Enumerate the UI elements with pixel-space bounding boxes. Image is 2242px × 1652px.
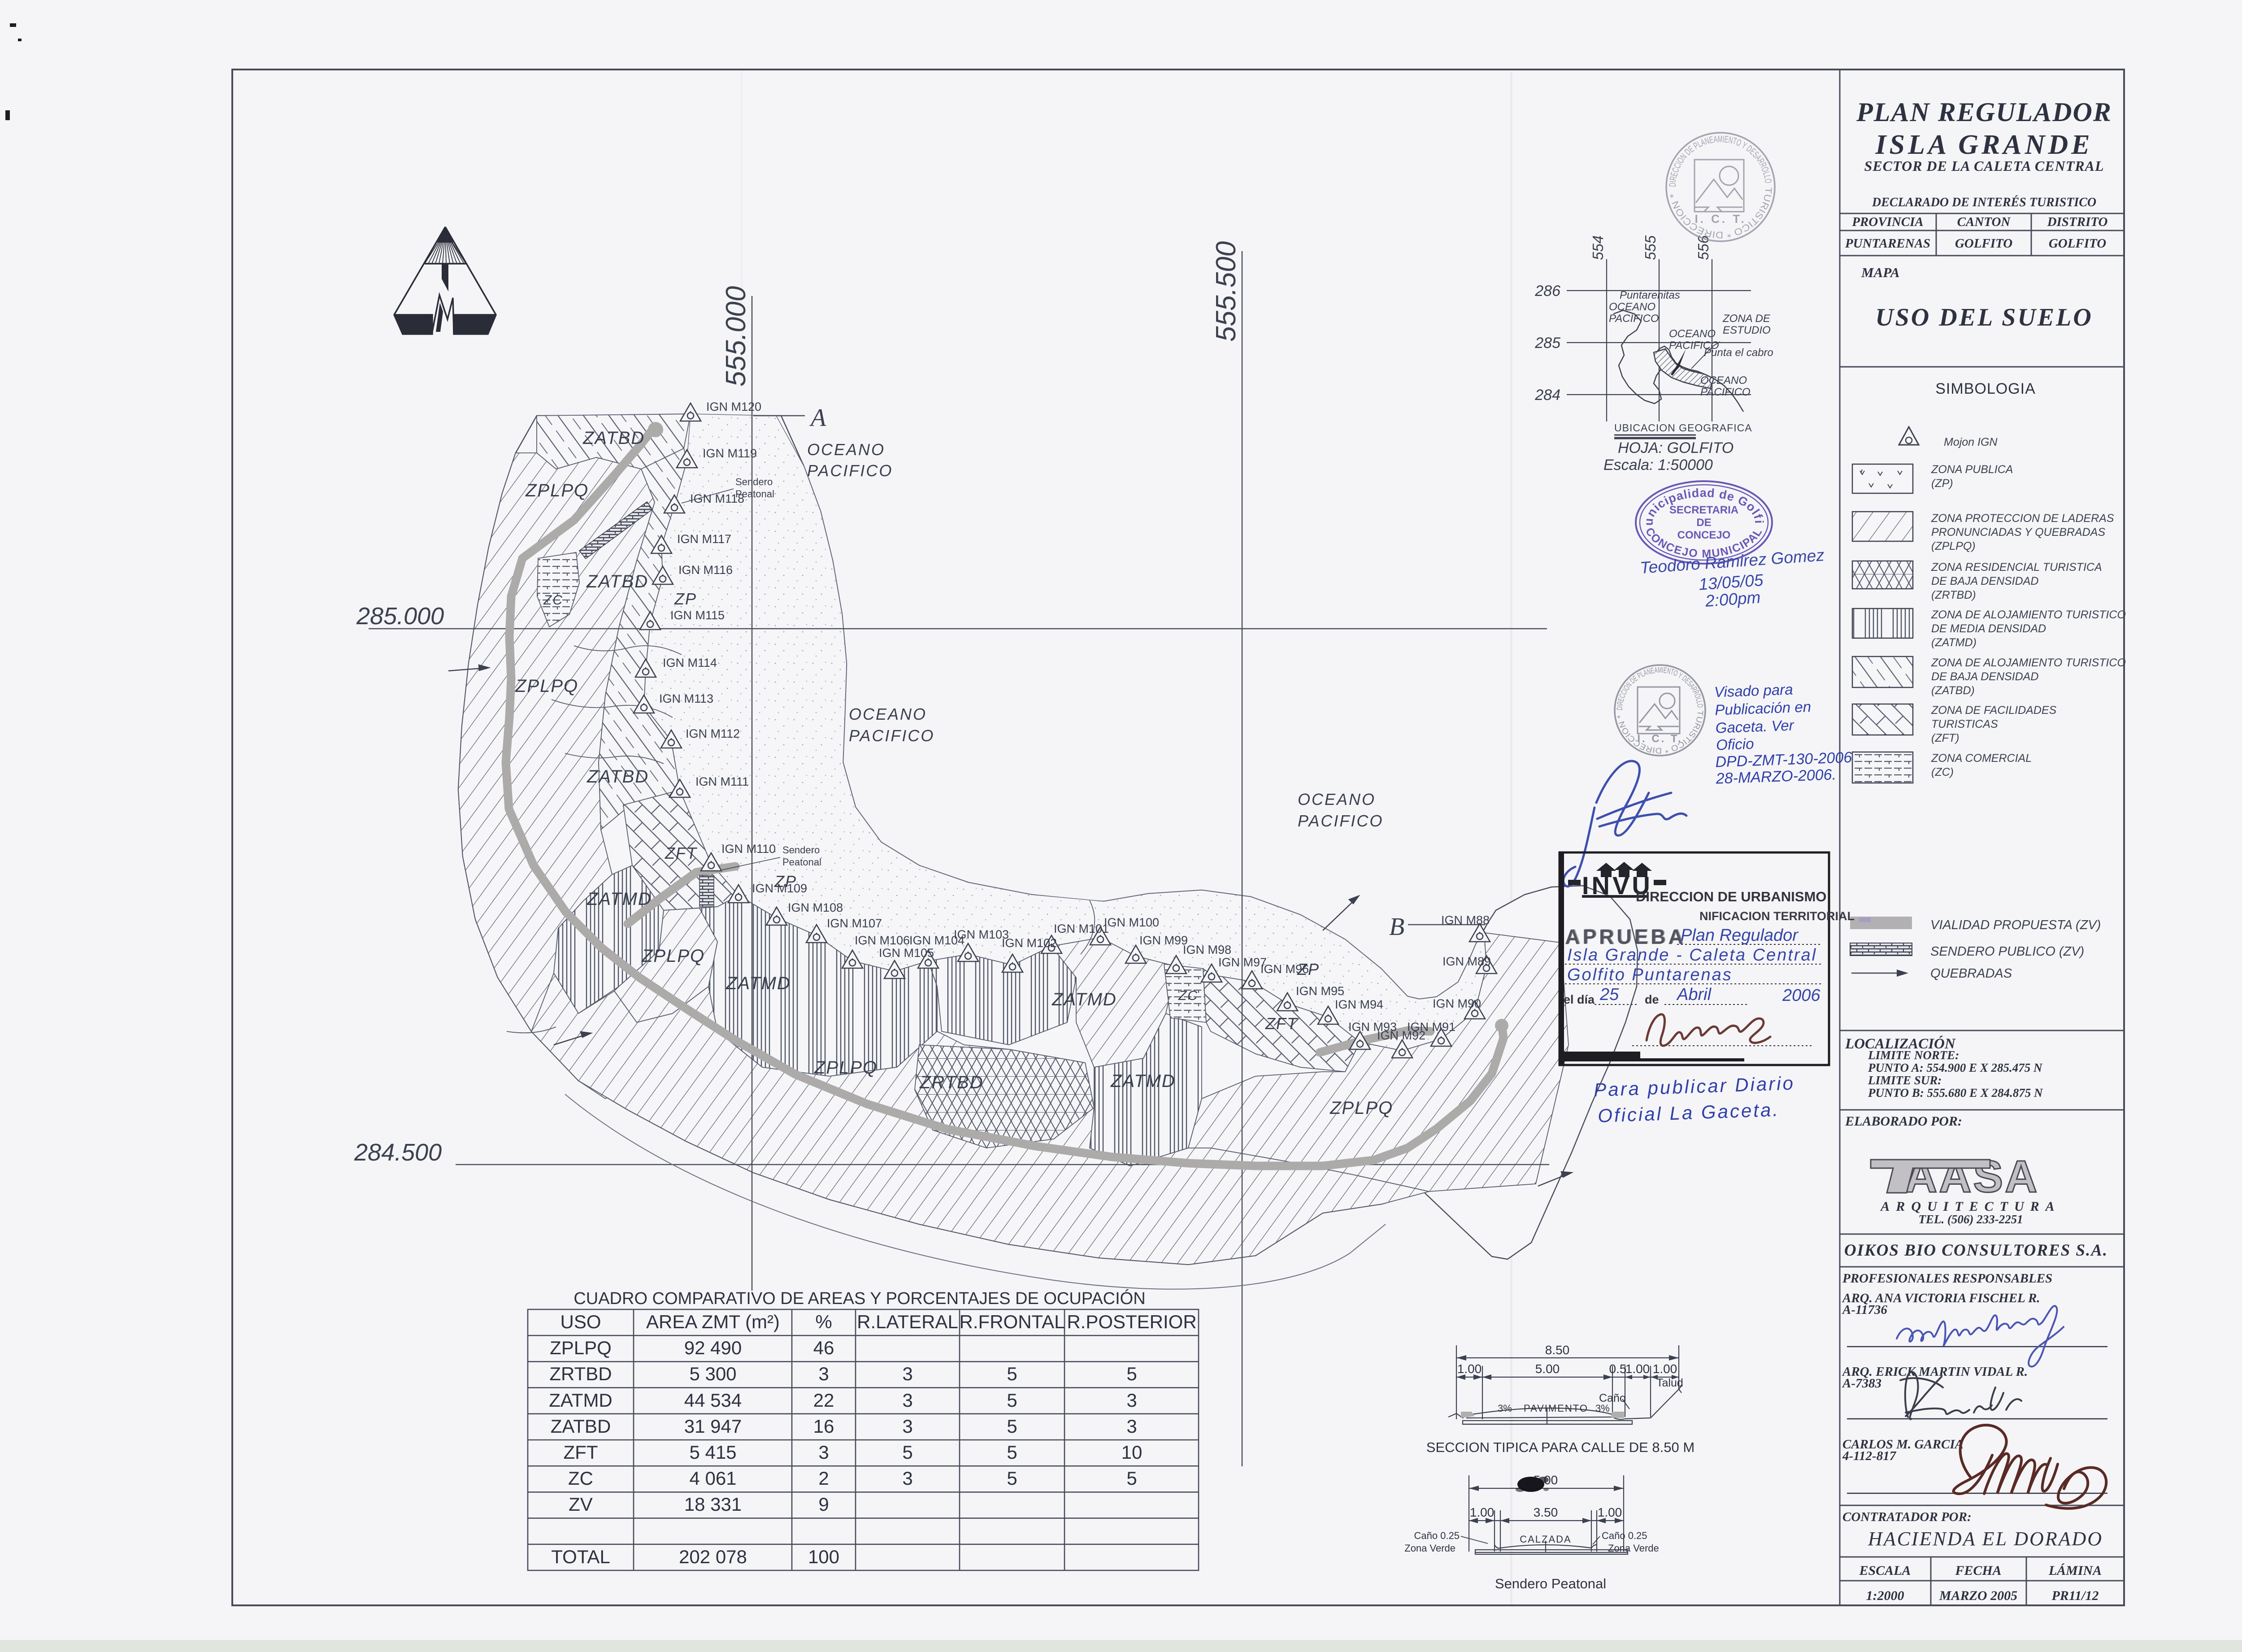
svg-text:ZPLPQ: ZPLPQ: [550, 1337, 612, 1358]
svg-text:PROVINCIA: PROVINCIA: [1851, 215, 1924, 229]
svg-text:Zona Verde: Zona Verde: [1404, 1543, 1456, 1554]
svg-text:UBICACION GEOGRAFICA: UBICACION GEOGRAFICA: [1614, 422, 1752, 434]
svg-text:555: 555: [1642, 235, 1659, 260]
svg-text:ZPLPQ: ZPLPQ: [525, 481, 589, 500]
svg-text:ZV: ZV: [569, 1494, 593, 1515]
svg-text:ZPLPQ: ZPLPQ: [515, 676, 578, 696]
svg-text:1.00: 1.00: [1625, 1362, 1650, 1376]
svg-text:SECTOR DE LA CALETA CENTRAL: SECTOR DE LA CALETA CENTRAL: [1864, 158, 2104, 174]
svg-text:Oficio: Oficio: [1716, 735, 1754, 753]
svg-text:Publicación en: Publicación en: [1715, 698, 1812, 718]
svg-text:%: %: [815, 1311, 832, 1332]
svg-text:OCEANO: OCEANO: [1298, 790, 1376, 809]
svg-text:ARQUITECTURA: ARQUITECTURA: [1880, 1199, 2060, 1214]
svg-text:22: 22: [813, 1390, 834, 1411]
svg-text:8.50: 8.50: [1545, 1343, 1570, 1357]
svg-text:25: 25: [1599, 985, 1619, 1004]
svg-text:Talud: Talud: [1656, 1377, 1683, 1389]
svg-text:ZATMD: ZATMD: [549, 1390, 613, 1411]
svg-text:Sendero Peatonal: Sendero Peatonal: [1495, 1576, 1606, 1591]
svg-text:IGN M89: IGN M89: [1443, 955, 1491, 968]
svg-text:SENDERO PUBLICO (ZV): SENDERO PUBLICO (ZV): [1930, 944, 2084, 959]
svg-text:TOTAL: TOTAL: [551, 1546, 610, 1567]
svg-text:3: 3: [1126, 1416, 1137, 1437]
svg-text:OCEANO: OCEANO: [849, 705, 927, 723]
svg-text:SECCION TIPICA PARA CALLE DE 8: SECCION TIPICA PARA CALLE DE 8.50 M: [1426, 1439, 1695, 1455]
svg-text:de: de: [1645, 993, 1659, 1006]
svg-text:16: 16: [813, 1416, 834, 1437]
svg-text:18 331: 18 331: [684, 1494, 742, 1515]
svg-text:I. C. T.: I. C. T.: [1695, 212, 1746, 226]
svg-text:Mojon IGN: Mojon IGN: [1944, 436, 1998, 448]
svg-text:IGN M111: IGN M111: [695, 775, 749, 788]
svg-text:(ZATBD): (ZATBD): [1931, 684, 1975, 697]
svg-text:PACIFICO: PACIFICO: [1609, 313, 1659, 325]
svg-text:Sendero: Sendero: [735, 476, 773, 487]
svg-text:IGN M98: IGN M98: [1183, 943, 1231, 956]
svg-text:DE BAJA DENSIDAD: DE BAJA DENSIDAD: [1931, 670, 2038, 683]
svg-text:ZONA DE: ZONA DE: [1722, 313, 1771, 325]
svg-text:4 061: 4 061: [689, 1468, 736, 1489]
svg-text:APRUEBA: APRUEBA: [1566, 925, 1686, 948]
svg-text:202 078: 202 078: [679, 1546, 747, 1567]
svg-text:ZONA COMERCIAL: ZONA COMERCIAL: [1931, 752, 2032, 765]
svg-text:DE BAJA DENSIDAD: DE BAJA DENSIDAD: [1931, 575, 2038, 587]
svg-text:ZATBD: ZATBD: [582, 428, 645, 448]
svg-text:IGN M101: IGN M101: [1054, 922, 1109, 935]
svg-text:100: 100: [808, 1546, 839, 1567]
svg-text:1.00: 1.00: [1653, 1362, 1677, 1376]
svg-text:IGN M106: IGN M106: [855, 934, 910, 947]
svg-text:GOLFITO: GOLFITO: [2049, 236, 2106, 251]
svg-text:PLAN REGULADOR: PLAN REGULADOR: [1856, 97, 2112, 127]
svg-text:554: 554: [1590, 235, 1606, 260]
svg-text:ZATBD: ZATBD: [586, 572, 648, 591]
svg-text:2:00pm: 2:00pm: [1704, 588, 1761, 610]
svg-text:ZC: ZC: [568, 1468, 593, 1489]
svg-text:31 947: 31 947: [684, 1416, 742, 1437]
svg-text:44 534: 44 534: [684, 1390, 742, 1411]
svg-text:DE MEDIA DENSIDAD: DE MEDIA DENSIDAD: [1931, 622, 2046, 635]
svg-text:A-7383: A-7383: [1842, 1376, 1881, 1391]
svg-text:VIALIDAD PROPUESTA (ZV): VIALIDAD PROPUESTA (ZV): [1930, 918, 2101, 932]
svg-text:IGN M95: IGN M95: [1296, 984, 1344, 998]
svg-text:IGN M88: IGN M88: [1441, 913, 1490, 927]
svg-text:Caño 0.25: Caño 0.25: [1602, 1530, 1647, 1541]
svg-text:ZP: ZP: [674, 590, 697, 608]
svg-text:Puntarenitas: Puntarenitas: [1620, 289, 1680, 301]
svg-text:CALZADA: CALZADA: [1520, 1534, 1571, 1545]
svg-text:46: 46: [813, 1337, 834, 1358]
svg-text:ZATBD: ZATBD: [551, 1416, 611, 1437]
svg-text:ZPLPQ: ZPLPQ: [1330, 1098, 1393, 1118]
svg-text:286: 286: [1534, 283, 1560, 300]
svg-text:5: 5: [1007, 1363, 1017, 1384]
svg-text:5 300: 5 300: [689, 1363, 736, 1384]
svg-text:555.000: 555.000: [721, 286, 752, 387]
svg-text:ZC: ZC: [1178, 988, 1198, 1003]
svg-text:ZONA DE ALOJAMIENTO TURISTICO: ZONA DE ALOJAMIENTO TURISTICO: [1931, 609, 2126, 621]
svg-text:IGN M119: IGN M119: [703, 447, 757, 460]
svg-text:IGN M109: IGN M109: [752, 882, 807, 895]
svg-text:Gaceta. Ver: Gaceta. Ver: [1715, 717, 1795, 736]
svg-text:1:2000: 1:2000: [1866, 1588, 1904, 1603]
svg-text:3.50: 3.50: [1534, 1505, 1558, 1519]
svg-text:IGN M118: IGN M118: [690, 492, 744, 505]
svg-text:OCEANO: OCEANO: [1700, 374, 1747, 387]
svg-text:IGN M100: IGN M100: [1104, 916, 1159, 929]
svg-text:PACIFICO: PACIFICO: [1700, 386, 1751, 398]
svg-text:5: 5: [1007, 1416, 1017, 1437]
svg-text:5 415: 5 415: [689, 1442, 736, 1463]
svg-text:IGN M115: IGN M115: [670, 609, 725, 622]
svg-text:9: 9: [818, 1494, 829, 1515]
svg-text:Escala: 1:50000: Escala: 1:50000: [1603, 456, 1713, 474]
svg-text:3: 3: [902, 1468, 912, 1489]
svg-text:NIFICACION TERRITORIAL: NIFICACION TERRITORIAL: [1699, 909, 1855, 923]
svg-text:IGN M107: IGN M107: [827, 917, 882, 930]
svg-text:ZONA RESIDENCIAL TURISTICA: ZONA RESIDENCIAL TURISTICA: [1931, 561, 2102, 574]
svg-text:5: 5: [1126, 1363, 1137, 1384]
svg-text:GOLFITO: GOLFITO: [1955, 236, 2012, 251]
svg-text:284.500: 284.500: [354, 1139, 442, 1166]
svg-text:IGN M96: IGN M96: [1260, 962, 1309, 976]
svg-text:PACIFICO: PACIFICO: [807, 461, 893, 480]
svg-text:DISTRITO: DISTRITO: [2047, 215, 2108, 229]
svg-text:PAVIMENTO: PAVIMENTO: [1524, 1403, 1588, 1414]
svg-text:CONTRATADOR POR:: CONTRATADOR POR:: [1842, 1510, 1972, 1524]
svg-text:IGN M99: IGN M99: [1139, 934, 1188, 947]
svg-text:(ZP): (ZP): [1931, 477, 1953, 490]
svg-text:MARZO 2005: MARZO 2005: [1939, 1588, 2017, 1603]
svg-text:USO: USO: [560, 1311, 601, 1332]
svg-text:SECRETARIA: SECRETARIA: [1669, 504, 1738, 516]
svg-text:TEL. (506) 233-2251: TEL. (506) 233-2251: [1918, 1213, 2023, 1226]
svg-text:LIMITE NORTE:: LIMITE NORTE:: [1868, 1048, 1959, 1062]
svg-text:Plan Regulador: Plan Regulador: [1681, 926, 1799, 945]
svg-text:el día: el día: [1564, 993, 1595, 1006]
svg-text:ESCALA: ESCALA: [1859, 1563, 1911, 1578]
svg-text:5.00: 5.00: [1535, 1362, 1560, 1376]
svg-text:A-11736: A-11736: [1842, 1303, 1887, 1317]
svg-text:1.00: 1.00: [1470, 1505, 1495, 1519]
svg-text:IGN M116: IGN M116: [678, 563, 733, 577]
svg-text:PROFESIONALES RESPONSABLES: PROFESIONALES RESPONSABLES: [1842, 1271, 2052, 1286]
svg-text:10: 10: [1121, 1442, 1143, 1463]
svg-text:(ZC): (ZC): [1931, 766, 1954, 778]
svg-text:ZPLPQ: ZPLPQ: [641, 946, 705, 966]
svg-text:IGN M110: IGN M110: [721, 842, 776, 856]
svg-text:PRONUNCIADAS Y QUEBRADAS: PRONUNCIADAS Y QUEBRADAS: [1931, 526, 2105, 539]
svg-text:IGN M114: IGN M114: [663, 656, 717, 669]
svg-text:Zona Verde: Zona Verde: [1608, 1543, 1659, 1554]
svg-text:3: 3: [902, 1363, 912, 1384]
svg-text:IGN M112: IGN M112: [686, 727, 740, 740]
svg-text:DE: DE: [1696, 517, 1711, 529]
svg-text:ZONA DE FACILIDADES: ZONA DE FACILIDADES: [1931, 704, 2057, 717]
svg-text:4-112-817: 4-112-817: [1842, 1449, 1897, 1463]
svg-text:USO DEL SUELO: USO DEL SUELO: [1875, 304, 2093, 331]
svg-text:2: 2: [818, 1468, 829, 1489]
svg-text:ZPLPQ: ZPLPQ: [814, 1058, 878, 1078]
svg-text:QUEBRADAS: QUEBRADAS: [1930, 966, 2012, 981]
svg-text:CUADRO COMPARATIVO DE AREAS Y: CUADRO COMPARATIVO DE AREAS Y PORCENTAJE…: [574, 1289, 1145, 1308]
svg-text:(ZATMD): (ZATMD): [1931, 636, 1977, 649]
svg-text:ZONA PROTECCION DE LADERAS: ZONA PROTECCION DE LADERAS: [1931, 512, 2114, 525]
svg-text:IGN M113: IGN M113: [659, 692, 713, 705]
svg-text:(ZRTBD): (ZRTBD): [1931, 589, 1976, 601]
svg-text:PUNTO A: 554.900 E X 285.475 N: PUNTO A: 554.900 E X 285.475 N: [1868, 1061, 2043, 1074]
svg-text:LÁMINA: LÁMINA: [2048, 1563, 2102, 1578]
svg-text:2006: 2006: [1782, 986, 1821, 1005]
svg-text:Peatonal: Peatonal: [782, 856, 821, 868]
svg-text:DECLARADO DE INTERÉS TURISTICO: DECLARADO DE INTERÉS TURISTICO: [1872, 196, 2096, 209]
svg-text:IGN M103: IGN M103: [954, 928, 1009, 941]
svg-text:3: 3: [902, 1390, 912, 1411]
svg-text:FECHA: FECHA: [1955, 1563, 2001, 1578]
svg-text:R.FRONTAL: R.FRONTAL: [960, 1311, 1065, 1332]
svg-text:3: 3: [818, 1363, 829, 1384]
svg-text:3%: 3%: [1498, 1403, 1512, 1414]
svg-text:PUNTO B: 555.680 E X 284.875 N: PUNTO B: 555.680 E X 284.875 N: [1868, 1086, 2043, 1100]
svg-text:SIMBOLOGIA: SIMBOLOGIA: [1935, 380, 2036, 397]
svg-text:ZONA DE ALOJAMIENTO TURISTICO: ZONA DE ALOJAMIENTO TURISTICO: [1931, 656, 2126, 669]
svg-text:OIKOS BIO CONSULTORES S.A.: OIKOS BIO CONSULTORES S.A.: [1844, 1241, 2108, 1260]
svg-text:ZONA PUBLICA: ZONA PUBLICA: [1931, 463, 2013, 476]
svg-text:LIMITE SUR:: LIMITE SUR:: [1868, 1074, 1942, 1087]
svg-text:ZFT: ZFT: [1265, 1014, 1298, 1033]
svg-text:OCEANO: OCEANO: [1669, 328, 1716, 340]
svg-text:PACIFICO: PACIFICO: [1298, 812, 1383, 830]
svg-text:285: 285: [1534, 335, 1560, 352]
svg-text:PACIFICO: PACIFICO: [849, 726, 934, 745]
svg-text:AREA ZMT (m²): AREA ZMT (m²): [646, 1311, 780, 1332]
svg-text:ZFT: ZFT: [665, 844, 698, 862]
svg-text:3: 3: [1126, 1390, 1137, 1411]
svg-text:ZC: ZC: [543, 593, 563, 608]
svg-text:IGN M91: IGN M91: [1407, 1020, 1456, 1034]
svg-text:ISLA GRANDE: ISLA GRANDE: [1875, 130, 2093, 160]
svg-text:ZATMD: ZATMD: [1051, 990, 1117, 1009]
svg-text:Punta el cabro: Punta el cabro: [1704, 347, 1773, 359]
svg-text:5: 5: [1007, 1442, 1017, 1463]
svg-text:OCEANO: OCEANO: [807, 440, 885, 459]
svg-text:ZRTBD: ZRTBD: [919, 1073, 984, 1092]
svg-text:5: 5: [1007, 1468, 1017, 1489]
svg-text:OCEANO: OCEANO: [1609, 301, 1655, 313]
svg-text:HACIENDA EL DORADO: HACIENDA EL DORADO: [1868, 1528, 2103, 1550]
svg-text:Golfito Puntarenas: Golfito Puntarenas: [1567, 965, 1733, 984]
svg-text:IGN M108: IGN M108: [788, 901, 843, 914]
svg-text:ZRTBD: ZRTBD: [549, 1363, 612, 1384]
svg-text:5: 5: [1007, 1390, 1017, 1411]
svg-text:IGN M94: IGN M94: [1335, 998, 1383, 1011]
svg-text:PR11/12: PR11/12: [2051, 1588, 2099, 1603]
svg-text:B: B: [1389, 913, 1404, 941]
svg-text:ZFT: ZFT: [564, 1442, 598, 1463]
svg-text:R.LATERAL: R.LATERAL: [857, 1311, 958, 1332]
svg-text:Caño 0.25: Caño 0.25: [1414, 1530, 1460, 1541]
svg-text:IGN M120: IGN M120: [706, 400, 761, 413]
svg-text:5: 5: [902, 1442, 912, 1463]
svg-text:(ZPLPQ): (ZPLPQ): [1931, 540, 1976, 552]
svg-text:R.POSTERIOR: R.POSTERIOR: [1067, 1311, 1196, 1332]
svg-text:ZATMD: ZATMD: [587, 889, 652, 909]
svg-text:ZATMD: ZATMD: [1110, 1071, 1176, 1091]
svg-text:92 490: 92 490: [684, 1337, 742, 1358]
svg-text:Visado para: Visado para: [1714, 681, 1793, 700]
svg-text:(ZFT): (ZFT): [1931, 732, 1959, 744]
svg-text:IGN M97: IGN M97: [1218, 956, 1267, 969]
svg-text:MAPA: MAPA: [1861, 265, 1900, 280]
svg-text:CANTON: CANTON: [1957, 215, 2011, 229]
svg-text:HOJA: GOLFITO: HOJA: GOLFITO: [1618, 439, 1734, 456]
svg-text:285.000: 285.000: [356, 603, 444, 630]
svg-text:Caño: Caño: [1599, 1392, 1626, 1404]
svg-text:3: 3: [818, 1442, 829, 1463]
svg-text:DIRECCION DE URBANISMO: DIRECCION DE URBANISMO: [1636, 889, 1826, 904]
svg-text:1.00: 1.00: [1457, 1362, 1482, 1376]
svg-text:5: 5: [1126, 1468, 1137, 1489]
svg-text:ELABORADO POR:: ELABORADO POR:: [1845, 1114, 1962, 1129]
svg-text:IGN M117: IGN M117: [677, 532, 731, 546]
svg-text:CONCEJO: CONCEJO: [1677, 529, 1731, 541]
svg-text:TURISTICAS: TURISTICAS: [1931, 718, 1998, 730]
svg-text:IGN M102: IGN M102: [1002, 936, 1057, 950]
svg-text:A: A: [809, 404, 826, 432]
svg-text:IGN M105: IGN M105: [879, 946, 934, 960]
svg-text:284: 284: [1534, 387, 1560, 404]
svg-text:ZATBD: ZATBD: [587, 767, 649, 787]
svg-text:IGN M90: IGN M90: [1433, 997, 1481, 1010]
svg-text:PUNTARENAS: PUNTARENAS: [1845, 236, 1930, 251]
svg-text:Isla Grande - Caleta Central: Isla Grande - Caleta Central: [1567, 946, 1817, 965]
svg-text:Sendero: Sendero: [782, 844, 820, 856]
svg-text:3: 3: [902, 1416, 912, 1437]
svg-text:0.5: 0.5: [1609, 1362, 1627, 1376]
svg-text:555.500: 555.500: [1211, 241, 1242, 342]
svg-text:ESTUDIO: ESTUDIO: [1723, 324, 1771, 336]
svg-text:Abril: Abril: [1676, 985, 1712, 1004]
svg-text:ZATMD: ZATMD: [726, 974, 791, 993]
svg-text:1.00: 1.00: [1598, 1505, 1622, 1519]
